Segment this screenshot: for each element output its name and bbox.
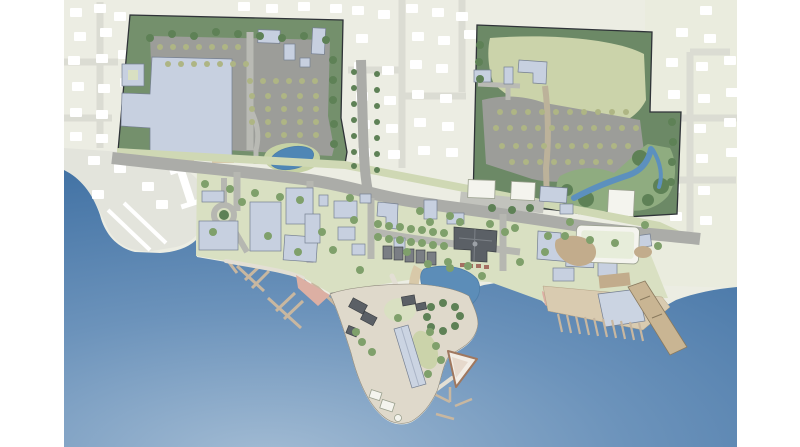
- cupola: [473, 242, 478, 247]
- store-courtyard: [128, 70, 138, 80]
- roundabout-green: [219, 210, 229, 220]
- ne-white-building: [607, 189, 634, 216]
- site-plan-map: Existing streets and houses shown faded …: [0, 0, 800, 447]
- northeast-parcel: Parcel with fan-shaped tree-lined parkin…: [473, 25, 681, 218]
- site-plan-page: Existing streets and houses shown faded …: [0, 0, 800, 447]
